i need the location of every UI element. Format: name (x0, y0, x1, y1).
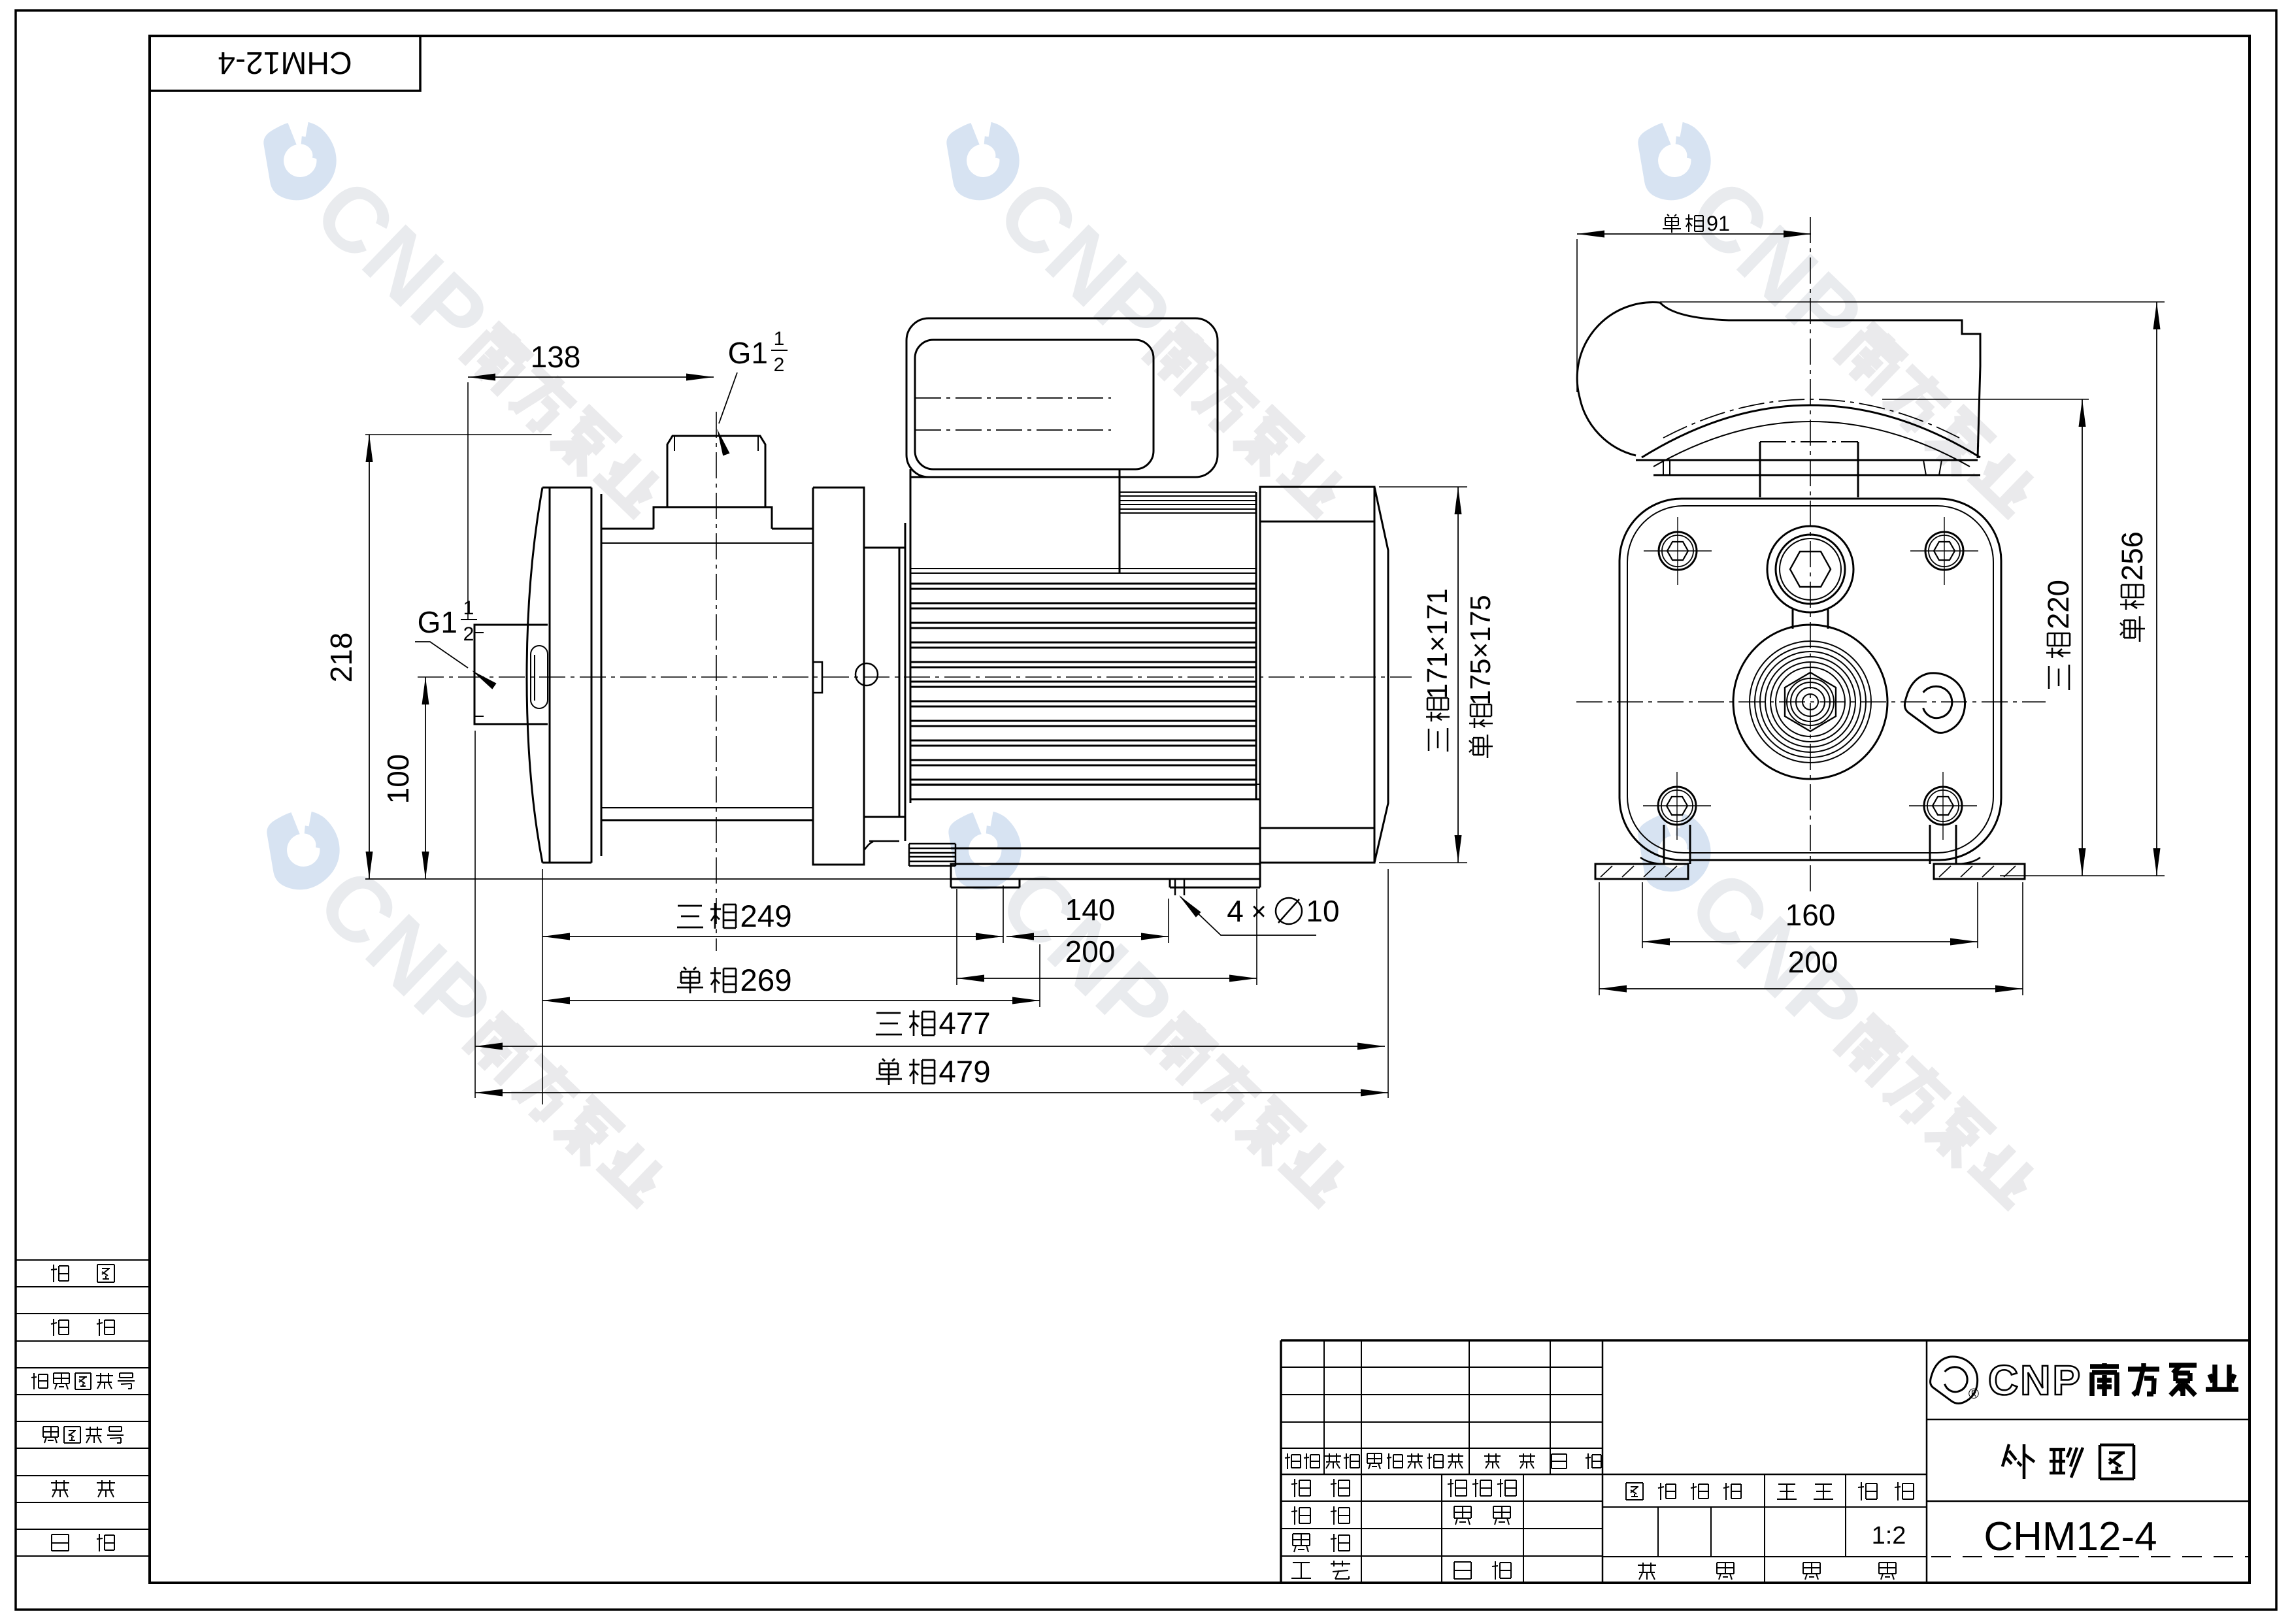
svg-text:G1: G1 (728, 336, 768, 370)
svg-text:269: 269 (740, 963, 791, 998)
svg-text:2: 2 (774, 354, 785, 376)
svg-text:®: ® (1968, 1385, 1979, 1402)
svg-text:1:2: 1:2 (1872, 1522, 1906, 1549)
svg-text:1: 1 (463, 597, 474, 619)
svg-text:200: 200 (1788, 945, 1838, 979)
svg-text:CHM12-4: CHM12-4 (1984, 1514, 2157, 1559)
svg-text:10: 10 (1306, 894, 1339, 928)
svg-text:138: 138 (531, 340, 581, 374)
svg-text:171×171: 171×171 (1422, 588, 1453, 699)
svg-text:477: 477 (938, 1006, 990, 1041)
svg-text:200: 200 (1065, 935, 1116, 969)
svg-text:140: 140 (1065, 893, 1116, 927)
svg-text:218: 218 (324, 633, 358, 683)
svg-text:CHM12-4: CHM12-4 (218, 45, 352, 80)
svg-text:249: 249 (740, 899, 791, 934)
svg-text:160: 160 (1785, 898, 1836, 932)
svg-text:×: × (1251, 897, 1266, 926)
svg-text:G1: G1 (418, 605, 457, 639)
svg-text:1: 1 (774, 328, 785, 350)
svg-text:100: 100 (381, 754, 415, 804)
svg-text:CNP: CNP (1988, 1357, 2082, 1404)
svg-text:2: 2 (463, 623, 474, 645)
svg-text:4: 4 (1227, 894, 1244, 928)
svg-text:175×175: 175×175 (1465, 595, 1497, 705)
svg-text:220: 220 (2042, 580, 2075, 629)
svg-text:91: 91 (1706, 212, 1730, 235)
svg-text:256: 256 (2116, 531, 2149, 581)
svg-text:479: 479 (938, 1055, 990, 1089)
